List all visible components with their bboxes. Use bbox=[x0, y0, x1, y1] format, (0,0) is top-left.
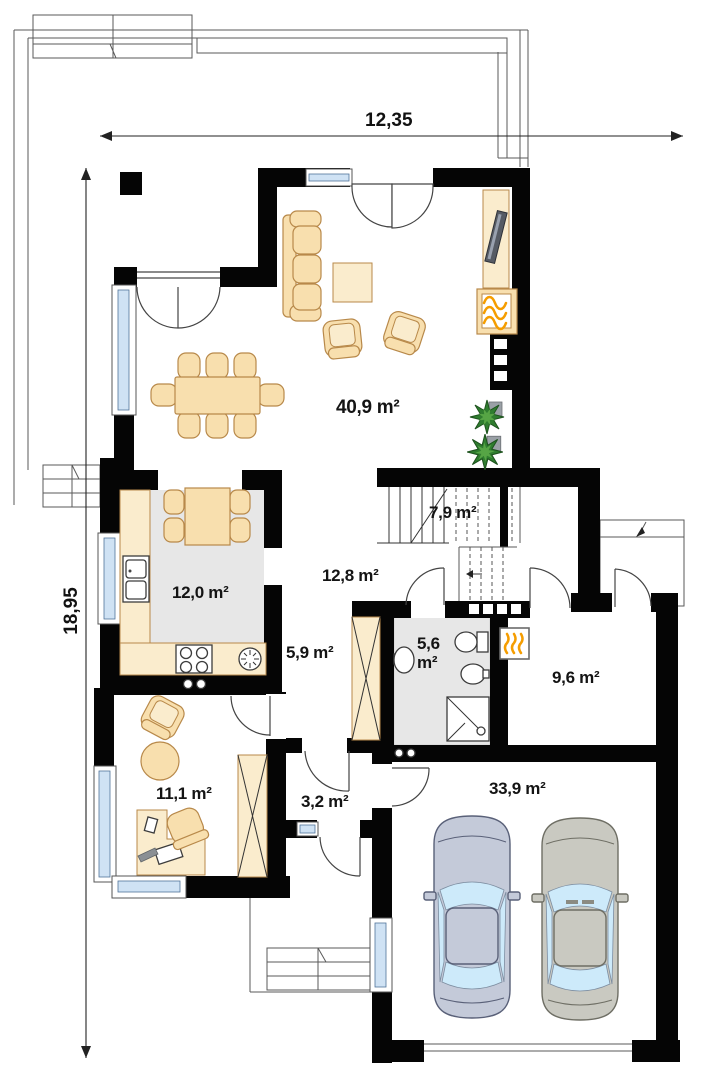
floor-plan-page: 40,9 m² 7,9 m² 12,8 m² 12,0 m² 5,9 m² 5,… bbox=[0, 0, 701, 1080]
office-armchair bbox=[137, 693, 187, 743]
wardrobe bbox=[352, 617, 380, 740]
room-label-office: 11,1 m² bbox=[156, 784, 212, 803]
living-room-top-window bbox=[306, 169, 352, 186]
garage-door-from-vestibule bbox=[392, 768, 429, 806]
fireplace-icon bbox=[477, 289, 517, 334]
room-label-garage: 33,9 m² bbox=[489, 779, 546, 798]
dimension-width-label: 12,35 bbox=[365, 110, 413, 132]
entry-sidelight-window bbox=[297, 822, 318, 836]
dining-table-set bbox=[151, 353, 284, 438]
kitchen-left-window bbox=[98, 533, 122, 624]
dining-left-window bbox=[112, 285, 136, 415]
room-label-bathroom: 5,6 m² bbox=[417, 634, 440, 672]
room-label-bathroom-line2: m² bbox=[417, 653, 437, 672]
room-label-kitchen: 12,0 m² bbox=[172, 583, 229, 602]
armchair bbox=[322, 318, 363, 360]
plant-icon bbox=[467, 434, 503, 470]
dimension-line-horizontal bbox=[100, 131, 683, 141]
car-icon bbox=[532, 818, 628, 1020]
entrance-steps bbox=[250, 898, 370, 992]
coffee-table bbox=[333, 263, 372, 302]
garage-gate bbox=[424, 1044, 632, 1051]
round-table bbox=[141, 742, 179, 780]
armchair bbox=[381, 309, 428, 357]
floor-plan-drawing bbox=[0, 0, 701, 1080]
room-label-staircase: 7,9 m² bbox=[429, 503, 476, 522]
sofa bbox=[283, 211, 321, 321]
room-label-vestibule: 3,2 m² bbox=[301, 792, 348, 811]
garage-left-window bbox=[370, 918, 392, 992]
wardrobe bbox=[238, 755, 267, 877]
stove-icon bbox=[176, 645, 212, 673]
office-left-window bbox=[94, 766, 116, 882]
plant-icon bbox=[470, 400, 504, 434]
toilet-icon bbox=[455, 632, 488, 652]
room-label-hall: 12,8 m² bbox=[322, 566, 379, 585]
sink-icon bbox=[123, 556, 149, 602]
front-entrance-door bbox=[320, 837, 360, 876]
car-icon bbox=[424, 816, 520, 1018]
office-bottom-window bbox=[112, 876, 186, 898]
room-label-utility-room: 9,6 m² bbox=[552, 668, 599, 687]
vestibule-door bbox=[305, 751, 349, 791]
extractor-fan-icon bbox=[239, 648, 261, 670]
room-label-living-room: 40,9 m² bbox=[336, 398, 399, 417]
washbasin-icon bbox=[394, 647, 414, 673]
room-label-bathroom-line1: 5,6 bbox=[417, 634, 440, 653]
office-door bbox=[231, 696, 270, 736]
terrace-pillar bbox=[120, 172, 142, 195]
furnace-icon bbox=[500, 628, 529, 659]
room-label-corridor: 5,9 m² bbox=[286, 643, 333, 662]
shower-icon bbox=[447, 697, 489, 741]
dimension-height-label: 18,95 bbox=[61, 581, 83, 641]
roof-slope-arrow-icon bbox=[636, 522, 646, 537]
bathroom-door bbox=[406, 568, 444, 605]
living-terrace-french-door bbox=[352, 184, 433, 228]
tv-cabinet bbox=[483, 190, 509, 288]
